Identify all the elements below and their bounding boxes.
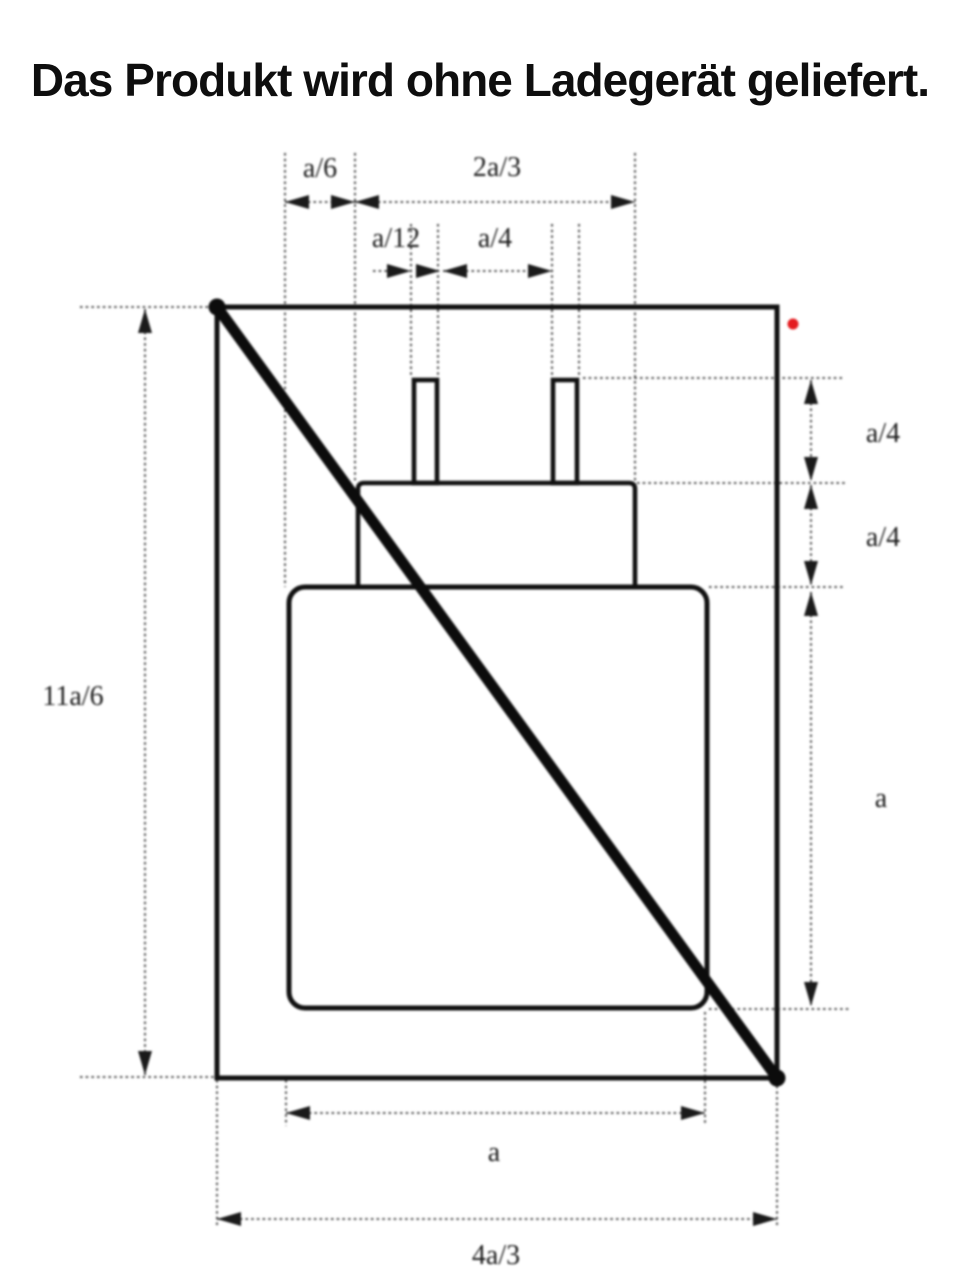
svg-text:a/4: a/4 — [866, 522, 900, 553]
svg-text:a/6: a/6 — [303, 153, 337, 184]
svg-text:4a/3: 4a/3 — [472, 1240, 520, 1271]
svg-text:a/4: a/4 — [478, 223, 512, 254]
svg-text:a: a — [875, 783, 888, 814]
svg-text:a: a — [488, 1137, 501, 1168]
svg-text:a/4: a/4 — [866, 418, 900, 449]
svg-text:2a/3: 2a/3 — [473, 152, 521, 183]
svg-text:11a/6: 11a/6 — [42, 681, 103, 712]
svg-text:a/12: a/12 — [372, 223, 420, 254]
